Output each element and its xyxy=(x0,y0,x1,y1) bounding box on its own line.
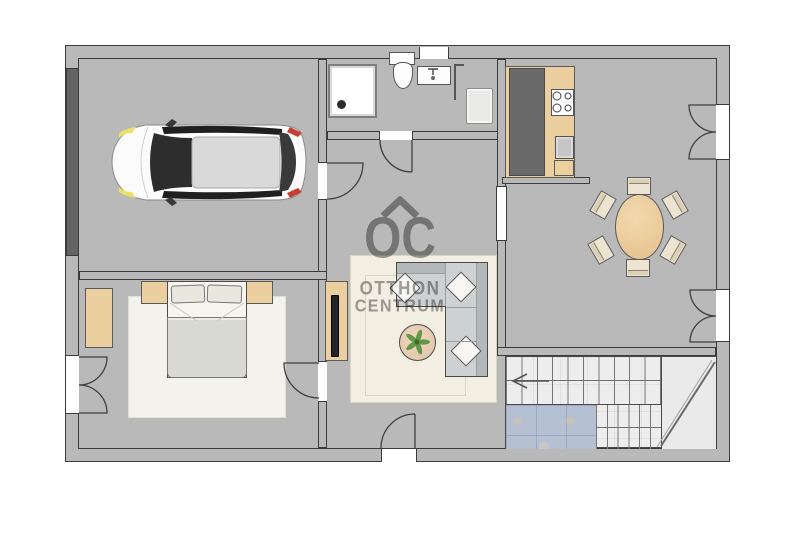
wall-kitchen-stub xyxy=(502,177,590,184)
french-door-top-opening xyxy=(716,104,729,160)
bathroom-partition-return xyxy=(454,64,464,66)
bathroom-sink xyxy=(417,66,451,85)
wall-garage-bedroom xyxy=(79,271,327,280)
garage-exterior-door xyxy=(66,68,79,256)
sofa-seam xyxy=(446,341,476,342)
french-door-bottom-opening xyxy=(716,289,729,342)
nightstand-left xyxy=(141,281,168,304)
bed-pillow-left xyxy=(171,284,206,303)
bathroom-partition xyxy=(454,64,456,100)
stair-treads-upper xyxy=(506,357,661,405)
sofa-seam xyxy=(445,263,446,306)
bed-pillow-right xyxy=(207,284,243,303)
washing-machine xyxy=(466,88,493,124)
nightstand-right xyxy=(246,281,273,304)
kitchen-worktop xyxy=(509,68,545,176)
dining-table xyxy=(615,194,664,260)
stair-rail-line xyxy=(596,427,661,428)
bedroom-window-opening xyxy=(66,355,79,414)
kitchen-sink xyxy=(555,136,574,159)
shower-drain xyxy=(337,100,346,109)
bathroom-door-opening xyxy=(379,131,413,140)
kitchen-cabinet xyxy=(554,160,574,176)
staircase xyxy=(505,356,716,448)
entry-door-opening xyxy=(381,449,417,462)
sofa-seam xyxy=(446,307,476,308)
bedroom-door-opening xyxy=(318,361,327,402)
stair-rail-line xyxy=(506,380,661,381)
tv xyxy=(331,295,339,357)
wall-dining-stairs xyxy=(497,347,716,356)
stair-flight-divider xyxy=(506,404,661,405)
wall-bathroom-living xyxy=(327,131,505,140)
shower xyxy=(328,64,377,118)
pass-through-window xyxy=(496,186,507,241)
dining-chair xyxy=(626,259,650,277)
wardrobe xyxy=(85,288,113,348)
bed-blanket xyxy=(167,317,247,378)
bathroom-window xyxy=(419,47,449,59)
stair-hall-floor xyxy=(506,405,596,449)
stair-landing xyxy=(661,357,716,449)
floor-plan: OC OTTHON CENTRUM xyxy=(0,0,800,533)
stove xyxy=(551,89,574,116)
garage-door-opening xyxy=(318,162,327,200)
coffee-table xyxy=(399,324,436,361)
dining-chair xyxy=(627,177,651,195)
